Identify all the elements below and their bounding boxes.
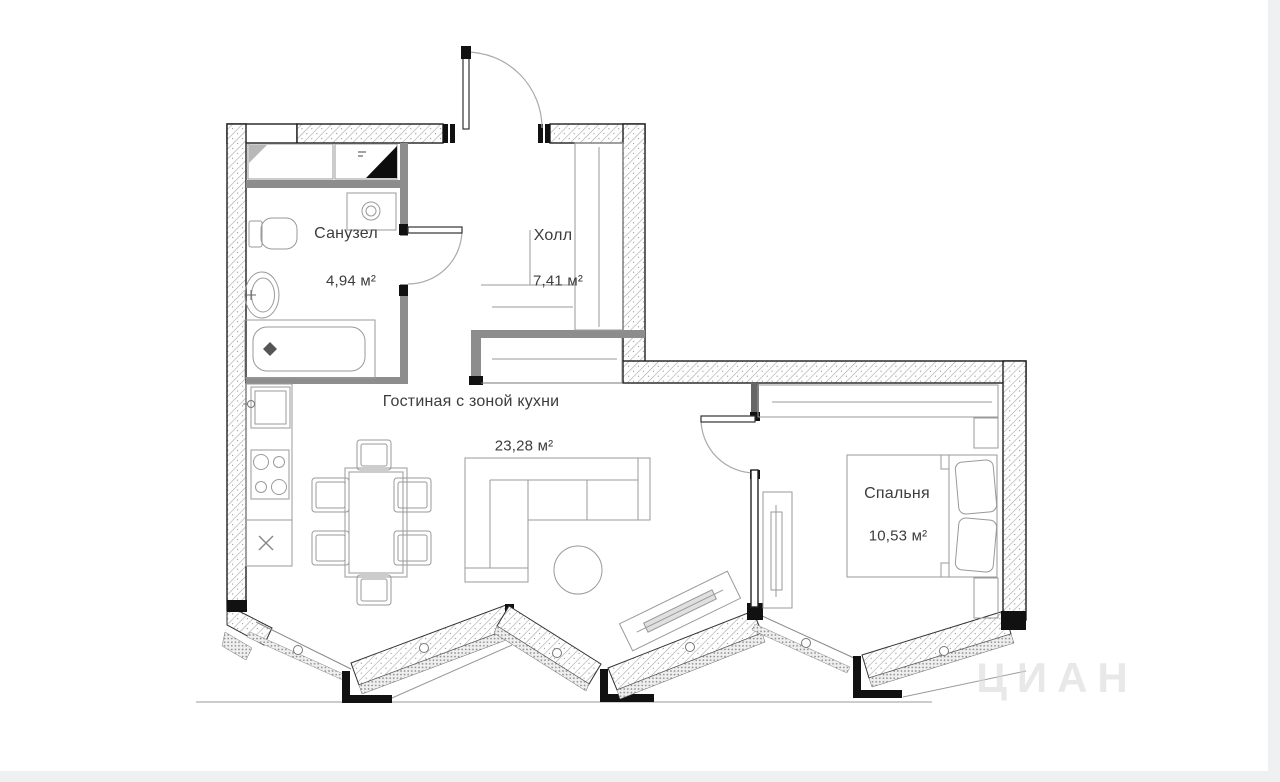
dining-chairs [312,440,431,605]
room-area-hall: 7,41 м² [533,273,583,290]
bathroom-door-jamb-bottom [399,285,408,296]
bathroom-fixtures [245,144,397,378]
entrance-door-jambs [443,124,550,143]
floor-plan: Санузел 4,94 м² Холл 7,41 м² Гостиная с … [0,0,1280,782]
kitchen-sink [251,387,290,428]
bathroom-shelf-ledge [246,180,400,188]
nightstand-bottom [974,578,998,618]
left-wall [227,124,246,610]
closet-wall-cap [469,376,483,385]
window-vent-c [553,649,562,658]
washing-machine-drum [362,202,380,220]
kitchen-sink-basin [255,391,286,424]
left-wall-end-cap [227,600,247,612]
bed [847,455,997,577]
bathroom-hall-wall-lower [400,284,408,384]
window-vent-e [802,639,811,648]
bathroom-door [408,227,462,284]
bay-window-facade [196,600,1026,703]
room-area-bedroom: 10,53 м² [869,528,928,545]
closet-left-wall [471,330,481,384]
stove [251,450,289,499]
window-band-e [752,624,850,673]
bathroom-hall-wall-upper [400,143,408,236]
stove-burner-3 [256,482,267,493]
room-label-living: Гостиная с зоной кухни [383,393,560,411]
coffee-table [554,546,602,594]
entrance-door [461,46,542,129]
toilet-tank [249,221,262,247]
hall-bottom-wall [471,330,645,338]
room-label-bedroom: Спальня [864,485,930,503]
entrance-door-cap [461,46,471,59]
right-wall-end-cap [1001,611,1026,630]
dining-table-top [349,472,403,573]
bedroom-wardrobe [758,385,998,417]
bedroom-left-wall [751,470,758,607]
bedroom-door-leaf [701,416,755,422]
bedroom-door [701,383,760,607]
page-margin-bottom [0,771,1280,782]
nightstand-top [974,418,998,448]
room-label-hall: Холл [534,227,573,245]
toilet-bowl [261,218,297,249]
pillow-1 [955,459,997,514]
bathroom-door-jamb-top [399,224,408,235]
room-area-bathroom: 4,94 м² [326,273,376,290]
valley1-corner-h [342,695,392,703]
bedroom-door-swing-arc [701,419,755,473]
cian-watermark: ЦИАН [976,654,1138,702]
bathroom-door-swing-arc [408,230,462,284]
room-label-bathroom: Санузел [314,225,378,243]
hall-right-wall [623,124,645,363]
page-margin-right [1268,0,1280,782]
entrance-door-leaf [463,50,469,129]
corner-sofa [465,458,650,582]
bathtub-drain [263,342,277,356]
window-vent-b [420,644,429,653]
shelf-corner-detail [249,145,267,163]
window-vent-f [940,647,949,656]
stove-burner-4 [272,480,287,495]
entrance-door-swing-arc [466,52,542,128]
top-wall-left [297,124,443,143]
stove-burner-2 [274,457,285,468]
washing-machine-drum-inner [366,206,376,216]
stove-burner-1 [254,455,269,470]
kitchen-cabinet [246,520,292,566]
kitchen-counter [246,384,292,566]
window-band-a [247,632,348,681]
valley3-corner-h [853,690,902,698]
kitchen-fixtures [243,384,292,566]
pillow-2 [955,517,997,572]
window-vent-a [294,646,303,655]
bathroom-door-leaf [408,227,462,233]
tv-unit [763,492,792,608]
bedroom-top-wall [623,361,1026,383]
hall-storage [481,143,623,383]
room-area-living: 23,28 м² [495,438,554,455]
bedroom-right-wall [1003,361,1026,620]
shelf-riser-mark [366,146,397,178]
window-vent-d [686,643,695,652]
